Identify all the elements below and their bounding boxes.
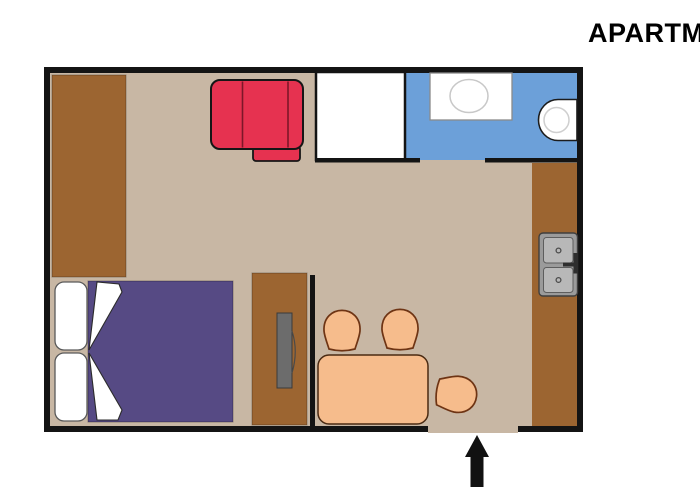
closet-room	[316, 72, 405, 160]
desk-chair	[277, 313, 292, 388]
pillow-bottom	[55, 353, 87, 421]
sink-basin-bottom	[544, 268, 574, 293]
toilet-bowl	[544, 108, 569, 133]
bathroom-wall-right	[485, 158, 577, 163]
sofa	[211, 80, 303, 161]
sofa-body	[211, 80, 303, 149]
partition-wall	[310, 275, 315, 426]
dining-chair-1	[324, 310, 360, 350]
entrance-arrow-icon	[465, 435, 489, 487]
bathroom-wall-left	[315, 158, 420, 163]
bathtub-basin	[450, 80, 488, 113]
wardrobe	[52, 75, 126, 277]
dining-table	[318, 355, 428, 424]
pillow-top	[55, 282, 87, 350]
entrance-opening	[428, 424, 518, 433]
floor-plan	[0, 0, 700, 500]
dining-chair-2	[382, 309, 418, 349]
sink-basin-top	[544, 238, 574, 264]
